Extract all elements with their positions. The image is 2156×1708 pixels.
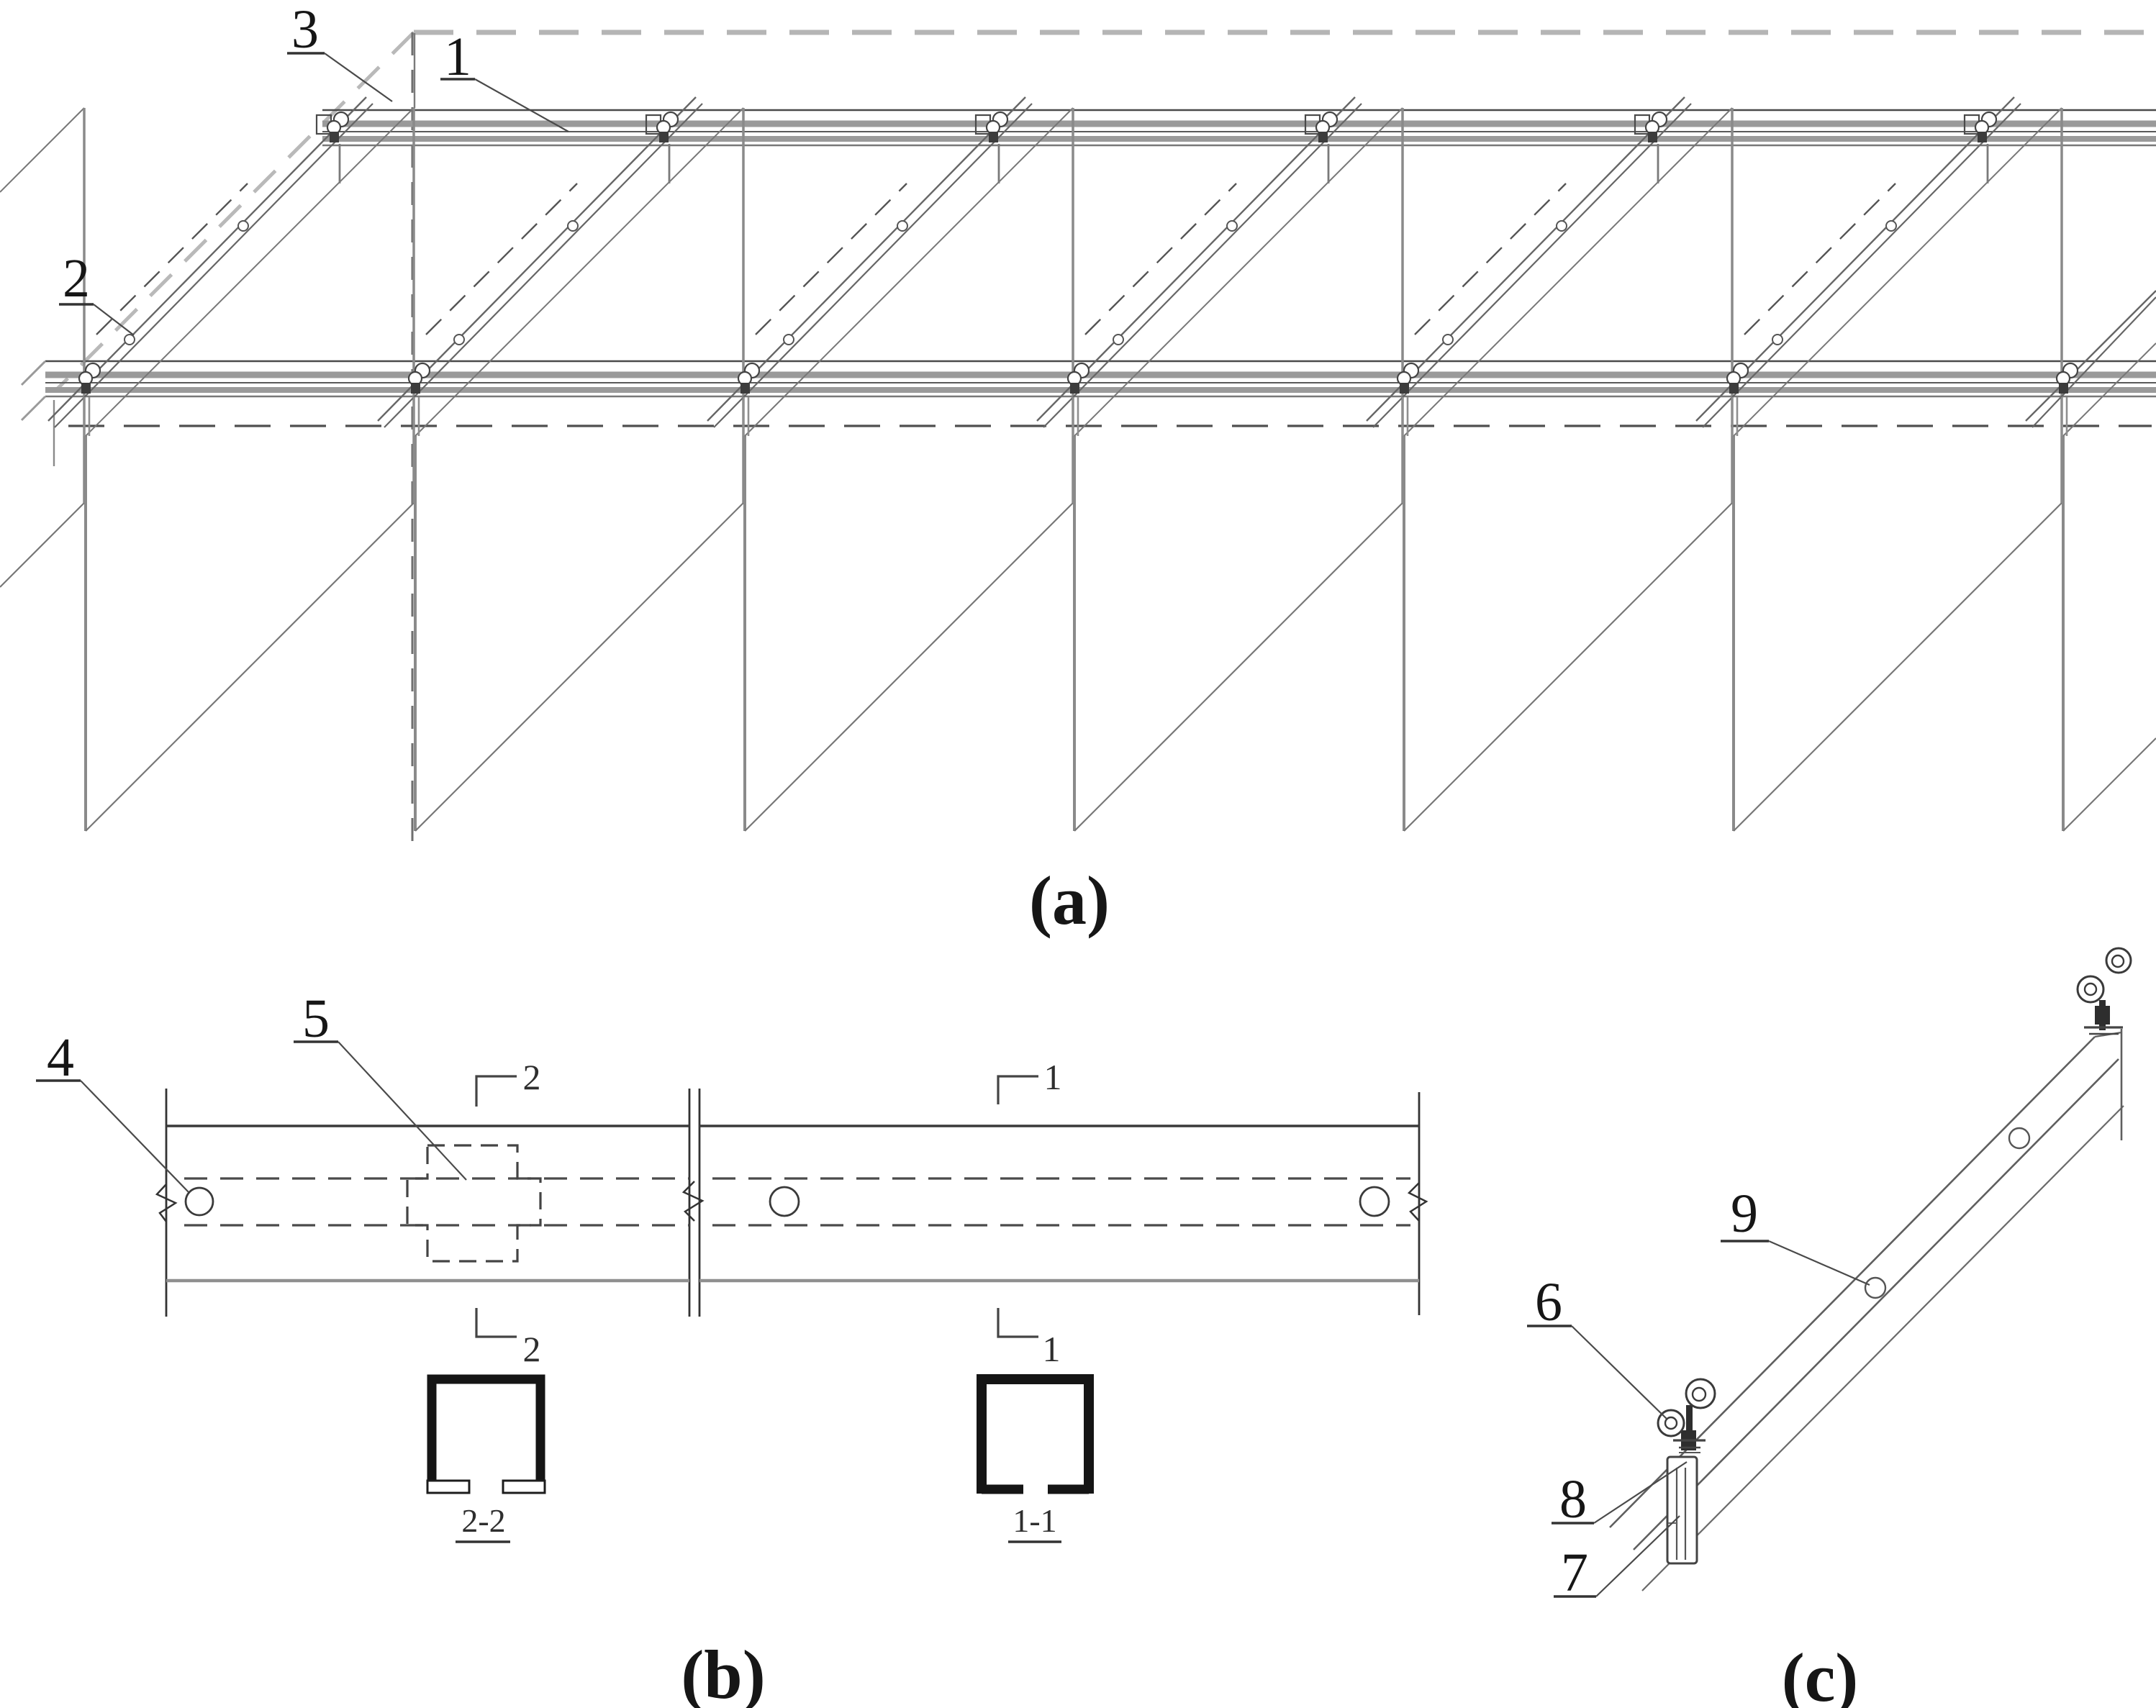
section-detail-2-2: 2-2 xyxy=(427,1379,545,1542)
panel-b-plan: 2211 2-2 1-1 xyxy=(157,1057,1426,1542)
hanger-strip xyxy=(378,97,702,436)
section-markers: 2211 xyxy=(476,1057,1062,1369)
strip-hole xyxy=(1865,1278,1885,1298)
rail-plan-right-segment xyxy=(684,1089,1426,1317)
callout-number-8: 8 xyxy=(1559,1469,1587,1530)
section-marker-number: 2 xyxy=(523,1057,541,1097)
callout-6: 6 xyxy=(1527,1272,1667,1419)
section-marker-bracket xyxy=(476,1076,517,1107)
section-marker-number: 1 xyxy=(1044,1057,1062,1097)
caption-b: (b) xyxy=(681,1636,765,1708)
callout-leader xyxy=(325,53,392,101)
callout-number-9: 9 xyxy=(1731,1184,1758,1244)
callout-leader xyxy=(81,1081,189,1192)
rail-hole xyxy=(1360,1187,1389,1216)
suspension-channel xyxy=(1667,1457,1697,1563)
section-marker-bracket xyxy=(998,1308,1038,1337)
rail-hole xyxy=(770,1187,799,1216)
section-detail-1-1: 1-1 xyxy=(982,1379,1089,1542)
panel-a-axonometric xyxy=(0,32,2156,853)
roller-wheel xyxy=(2106,948,2131,973)
panel-c-detail xyxy=(1610,948,2131,1591)
break-symbol xyxy=(1409,1183,1426,1221)
roller-wheel xyxy=(2078,976,2103,1002)
section-marker-bracket xyxy=(476,1308,517,1337)
roller-wheel xyxy=(1686,1379,1715,1408)
caption-c: (c) xyxy=(1782,1639,1859,1708)
upper-roller-assembly xyxy=(2078,948,2131,1034)
section-marker-bracket xyxy=(998,1076,1038,1104)
section-marker-number: 1 xyxy=(1043,1329,1061,1369)
section-marker-number: 2 xyxy=(523,1329,541,1369)
callout-number-5: 5 xyxy=(302,989,330,1049)
baffle-panel xyxy=(2063,343,2156,831)
rail-plan-left-segment xyxy=(157,1089,689,1317)
baffle-panel xyxy=(0,108,84,587)
callout-leader xyxy=(338,1042,466,1180)
callout-9: 9 xyxy=(1721,1184,1870,1285)
upper-rail xyxy=(322,110,2156,145)
section-label-1-1: 1-1 xyxy=(1013,1502,1056,1539)
callout-leader xyxy=(1769,1241,1870,1285)
callout-leader xyxy=(1572,1326,1667,1419)
callout-number-4: 4 xyxy=(47,1027,74,1088)
figure-canvas: 2211 2-2 1-1 xyxy=(0,0,2156,1708)
callout-3: 3 xyxy=(287,0,392,101)
rail-hole xyxy=(186,1188,213,1215)
callout-1: 1 xyxy=(440,27,569,132)
callout-number-3: 3 xyxy=(291,0,319,60)
callout-5: 5 xyxy=(294,989,466,1180)
callout-number-2: 2 xyxy=(63,248,90,309)
hanger-strip xyxy=(707,97,1032,436)
caption-a: (a) xyxy=(1029,862,1110,939)
lower-roller-assembly xyxy=(1658,1379,1715,1453)
callouts: 123456789 xyxy=(36,0,1870,1603)
hanger-strip xyxy=(48,97,373,436)
boundary-dashed-diagonal xyxy=(56,32,414,390)
lower-rail xyxy=(22,361,2156,466)
callout-number-6: 6 xyxy=(1535,1272,1562,1332)
hidden-connector-outline xyxy=(407,1145,540,1261)
callout-number-7: 7 xyxy=(1561,1543,1588,1603)
strip-hole xyxy=(2009,1128,2029,1148)
hanger-strip xyxy=(1367,97,1691,436)
bays-generated xyxy=(0,97,2156,831)
hanger-strip xyxy=(1696,97,2021,436)
section-label-2-2: 2-2 xyxy=(461,1502,505,1539)
hanger-strip xyxy=(1037,97,1362,436)
figure-page: 2211 2-2 1-1 xyxy=(0,0,2156,1708)
